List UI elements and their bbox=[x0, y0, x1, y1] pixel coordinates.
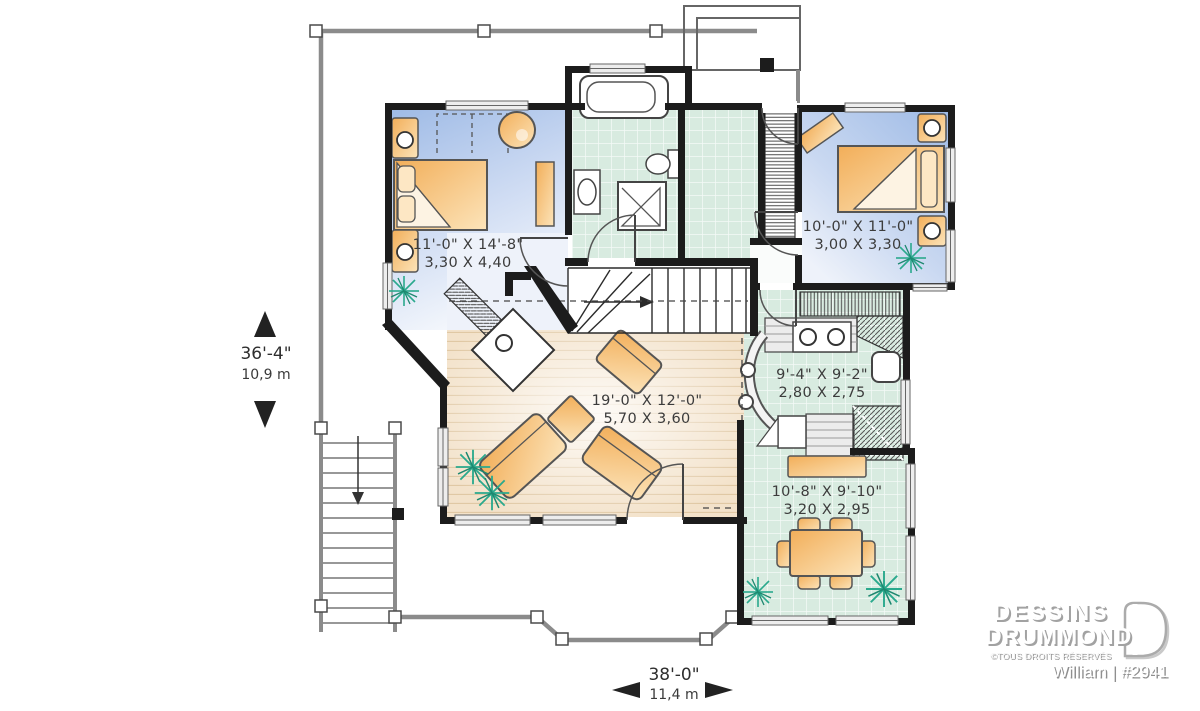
dim-arrow-left-icon bbox=[612, 682, 640, 698]
width-dimension-m: 11,4 m bbox=[638, 687, 710, 703]
dim-arrow-up-icon bbox=[254, 311, 276, 337]
living-room-metric: 5,70 X 3,60 bbox=[589, 410, 705, 428]
plant-icon bbox=[389, 276, 419, 306]
dining-room-metric: 3,20 X 2,95 bbox=[769, 501, 885, 519]
depth-dimension-m: 10,9 m bbox=[228, 367, 304, 383]
kitchen-imperial: 9'-4" X 9'-2" bbox=[764, 366, 880, 384]
living-room-label: 19'-0" X 12'-0" 5,70 X 3,60 bbox=[589, 392, 705, 428]
back-landing bbox=[684, 6, 800, 103]
plant-icon bbox=[743, 577, 773, 607]
dresser bbox=[536, 162, 554, 226]
plant-icon bbox=[475, 476, 510, 511]
stool bbox=[739, 395, 753, 409]
bedroom-2-imperial: 10'-0" X 11'-0" bbox=[800, 218, 916, 236]
width-dimension-ft: 38'-0" bbox=[638, 665, 710, 685]
pillow bbox=[398, 166, 415, 192]
pillow bbox=[398, 196, 415, 222]
floor-plan-page: 11'-0" X 14'-8" 3,30 X 4,40 10'-0" X 11'… bbox=[0, 0, 1200, 711]
bedroom-2-label: 10'-0" X 11'-0" 3,00 X 3,30 bbox=[800, 218, 916, 254]
dining-table bbox=[790, 530, 862, 576]
living-room-imperial: 19'-0" X 12'-0" bbox=[589, 392, 705, 410]
dining-room-label: 10'-8" X 9'-10" 3,20 X 2,95 bbox=[769, 483, 885, 519]
brand-line2: DRUMMOND bbox=[985, 624, 1117, 648]
depth-dimension-ft: 36'-4" bbox=[228, 344, 304, 364]
kitchen-label: 9'-4" X 9'-2" 2,80 X 2,75 bbox=[764, 366, 880, 402]
bedroom-2-metric: 3,00 X 3,30 bbox=[800, 236, 916, 254]
plant-icon bbox=[866, 571, 902, 607]
master-bedroom-imperial: 11'-0" X 14'-8" bbox=[382, 236, 554, 254]
hall-floor bbox=[685, 110, 758, 258]
fridge bbox=[778, 416, 806, 448]
brand-rights: ©TOUS DROITS RÉSERVÉS bbox=[981, 651, 1121, 661]
master-bedroom-metric: 3,30 X 4,40 bbox=[382, 254, 554, 272]
stool bbox=[741, 363, 755, 377]
armchair bbox=[499, 112, 535, 148]
chair bbox=[830, 575, 852, 589]
sideboard bbox=[788, 456, 866, 477]
plan-model-number: William | #2941 bbox=[1020, 662, 1168, 682]
chair bbox=[798, 575, 820, 589]
dim-arrow-down-icon bbox=[254, 401, 276, 428]
master-bedroom-label: 11'-0" X 14'-8" 3,30 X 4,40 bbox=[382, 236, 554, 272]
brand-line1: DESSINS bbox=[988, 600, 1114, 624]
dining-room-imperial: 10'-8" X 9'-10" bbox=[769, 483, 885, 501]
counter bbox=[806, 414, 854, 456]
pillow bbox=[921, 151, 937, 207]
exterior-stairs bbox=[315, 422, 404, 632]
kitchen-metric: 2,80 X 2,75 bbox=[764, 384, 880, 402]
pantry-closet bbox=[800, 292, 900, 316]
